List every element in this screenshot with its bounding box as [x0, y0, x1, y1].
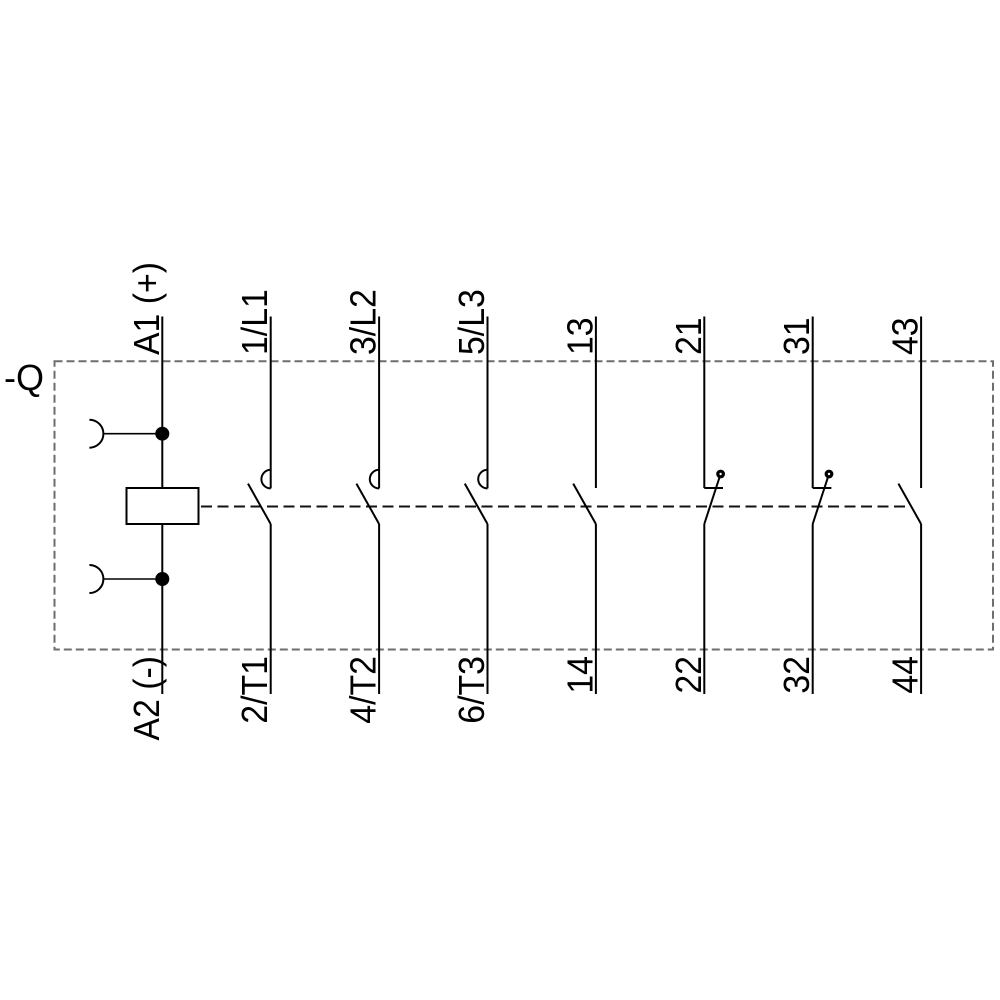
- svg-text:43: 43: [886, 317, 926, 355]
- svg-text:A1 (+): A1 (+): [127, 262, 167, 355]
- svg-text:44: 44: [886, 656, 926, 694]
- svg-text:A2 (-): A2 (-): [127, 656, 167, 741]
- svg-text:2/T1: 2/T1: [235, 656, 275, 724]
- svg-text:14: 14: [560, 656, 600, 694]
- svg-text:13: 13: [560, 317, 600, 355]
- svg-text:3/L2: 3/L2: [344, 289, 384, 355]
- svg-text:-Q: -Q: [4, 357, 44, 398]
- svg-text:32: 32: [777, 656, 817, 694]
- svg-text:1/L1: 1/L1: [235, 289, 275, 355]
- svg-text:31: 31: [777, 317, 817, 355]
- svg-text:6/T3: 6/T3: [452, 656, 492, 724]
- svg-text:5/L3: 5/L3: [452, 289, 492, 355]
- svg-text:22: 22: [669, 656, 709, 694]
- svg-text:21: 21: [669, 317, 709, 355]
- svg-text:4/T2: 4/T2: [344, 656, 384, 724]
